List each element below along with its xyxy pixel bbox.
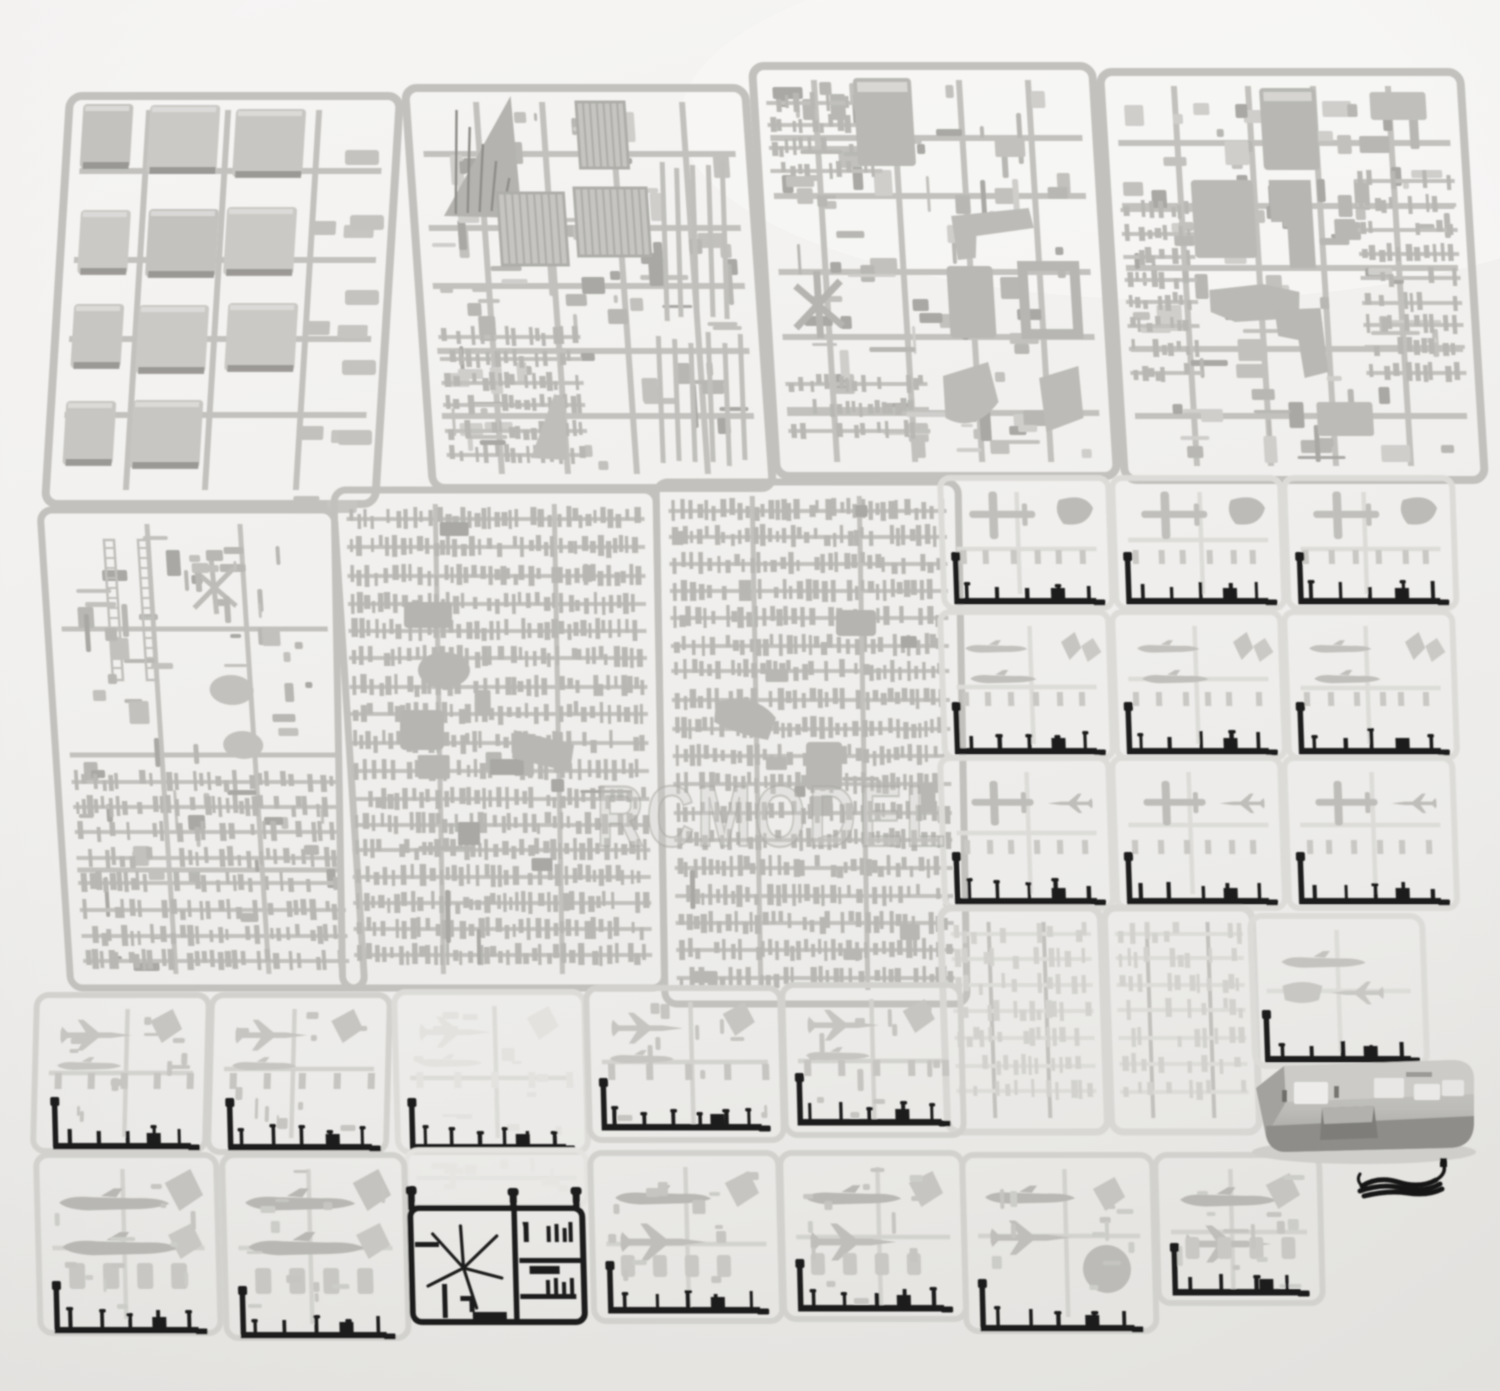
svg-text:RCMODEL: RCMODEL	[596, 769, 948, 865]
